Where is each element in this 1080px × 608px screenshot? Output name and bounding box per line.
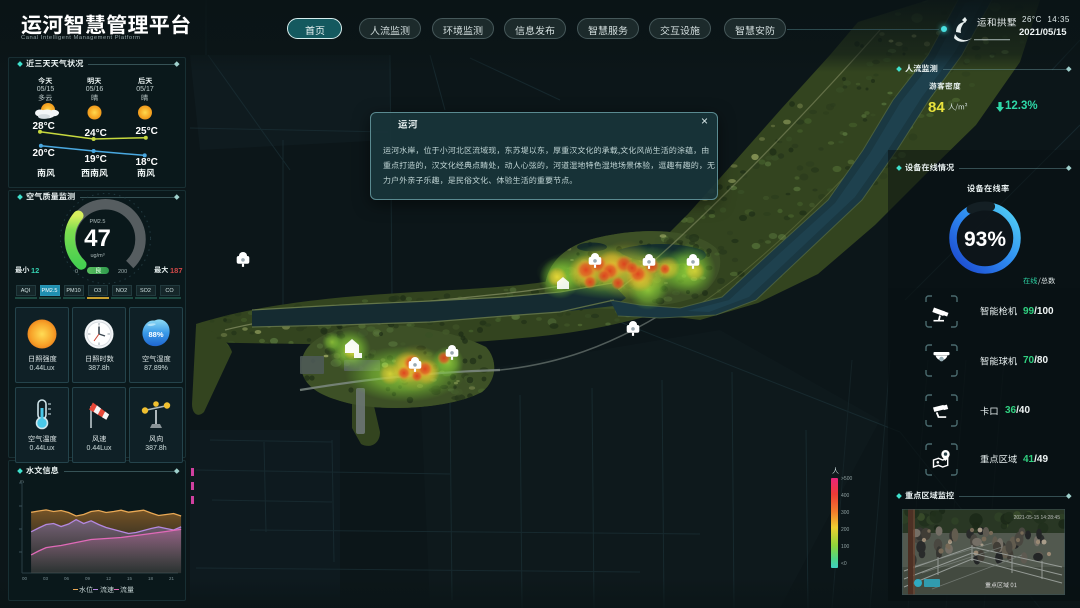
svg-text:88%: 88% <box>148 330 163 339</box>
